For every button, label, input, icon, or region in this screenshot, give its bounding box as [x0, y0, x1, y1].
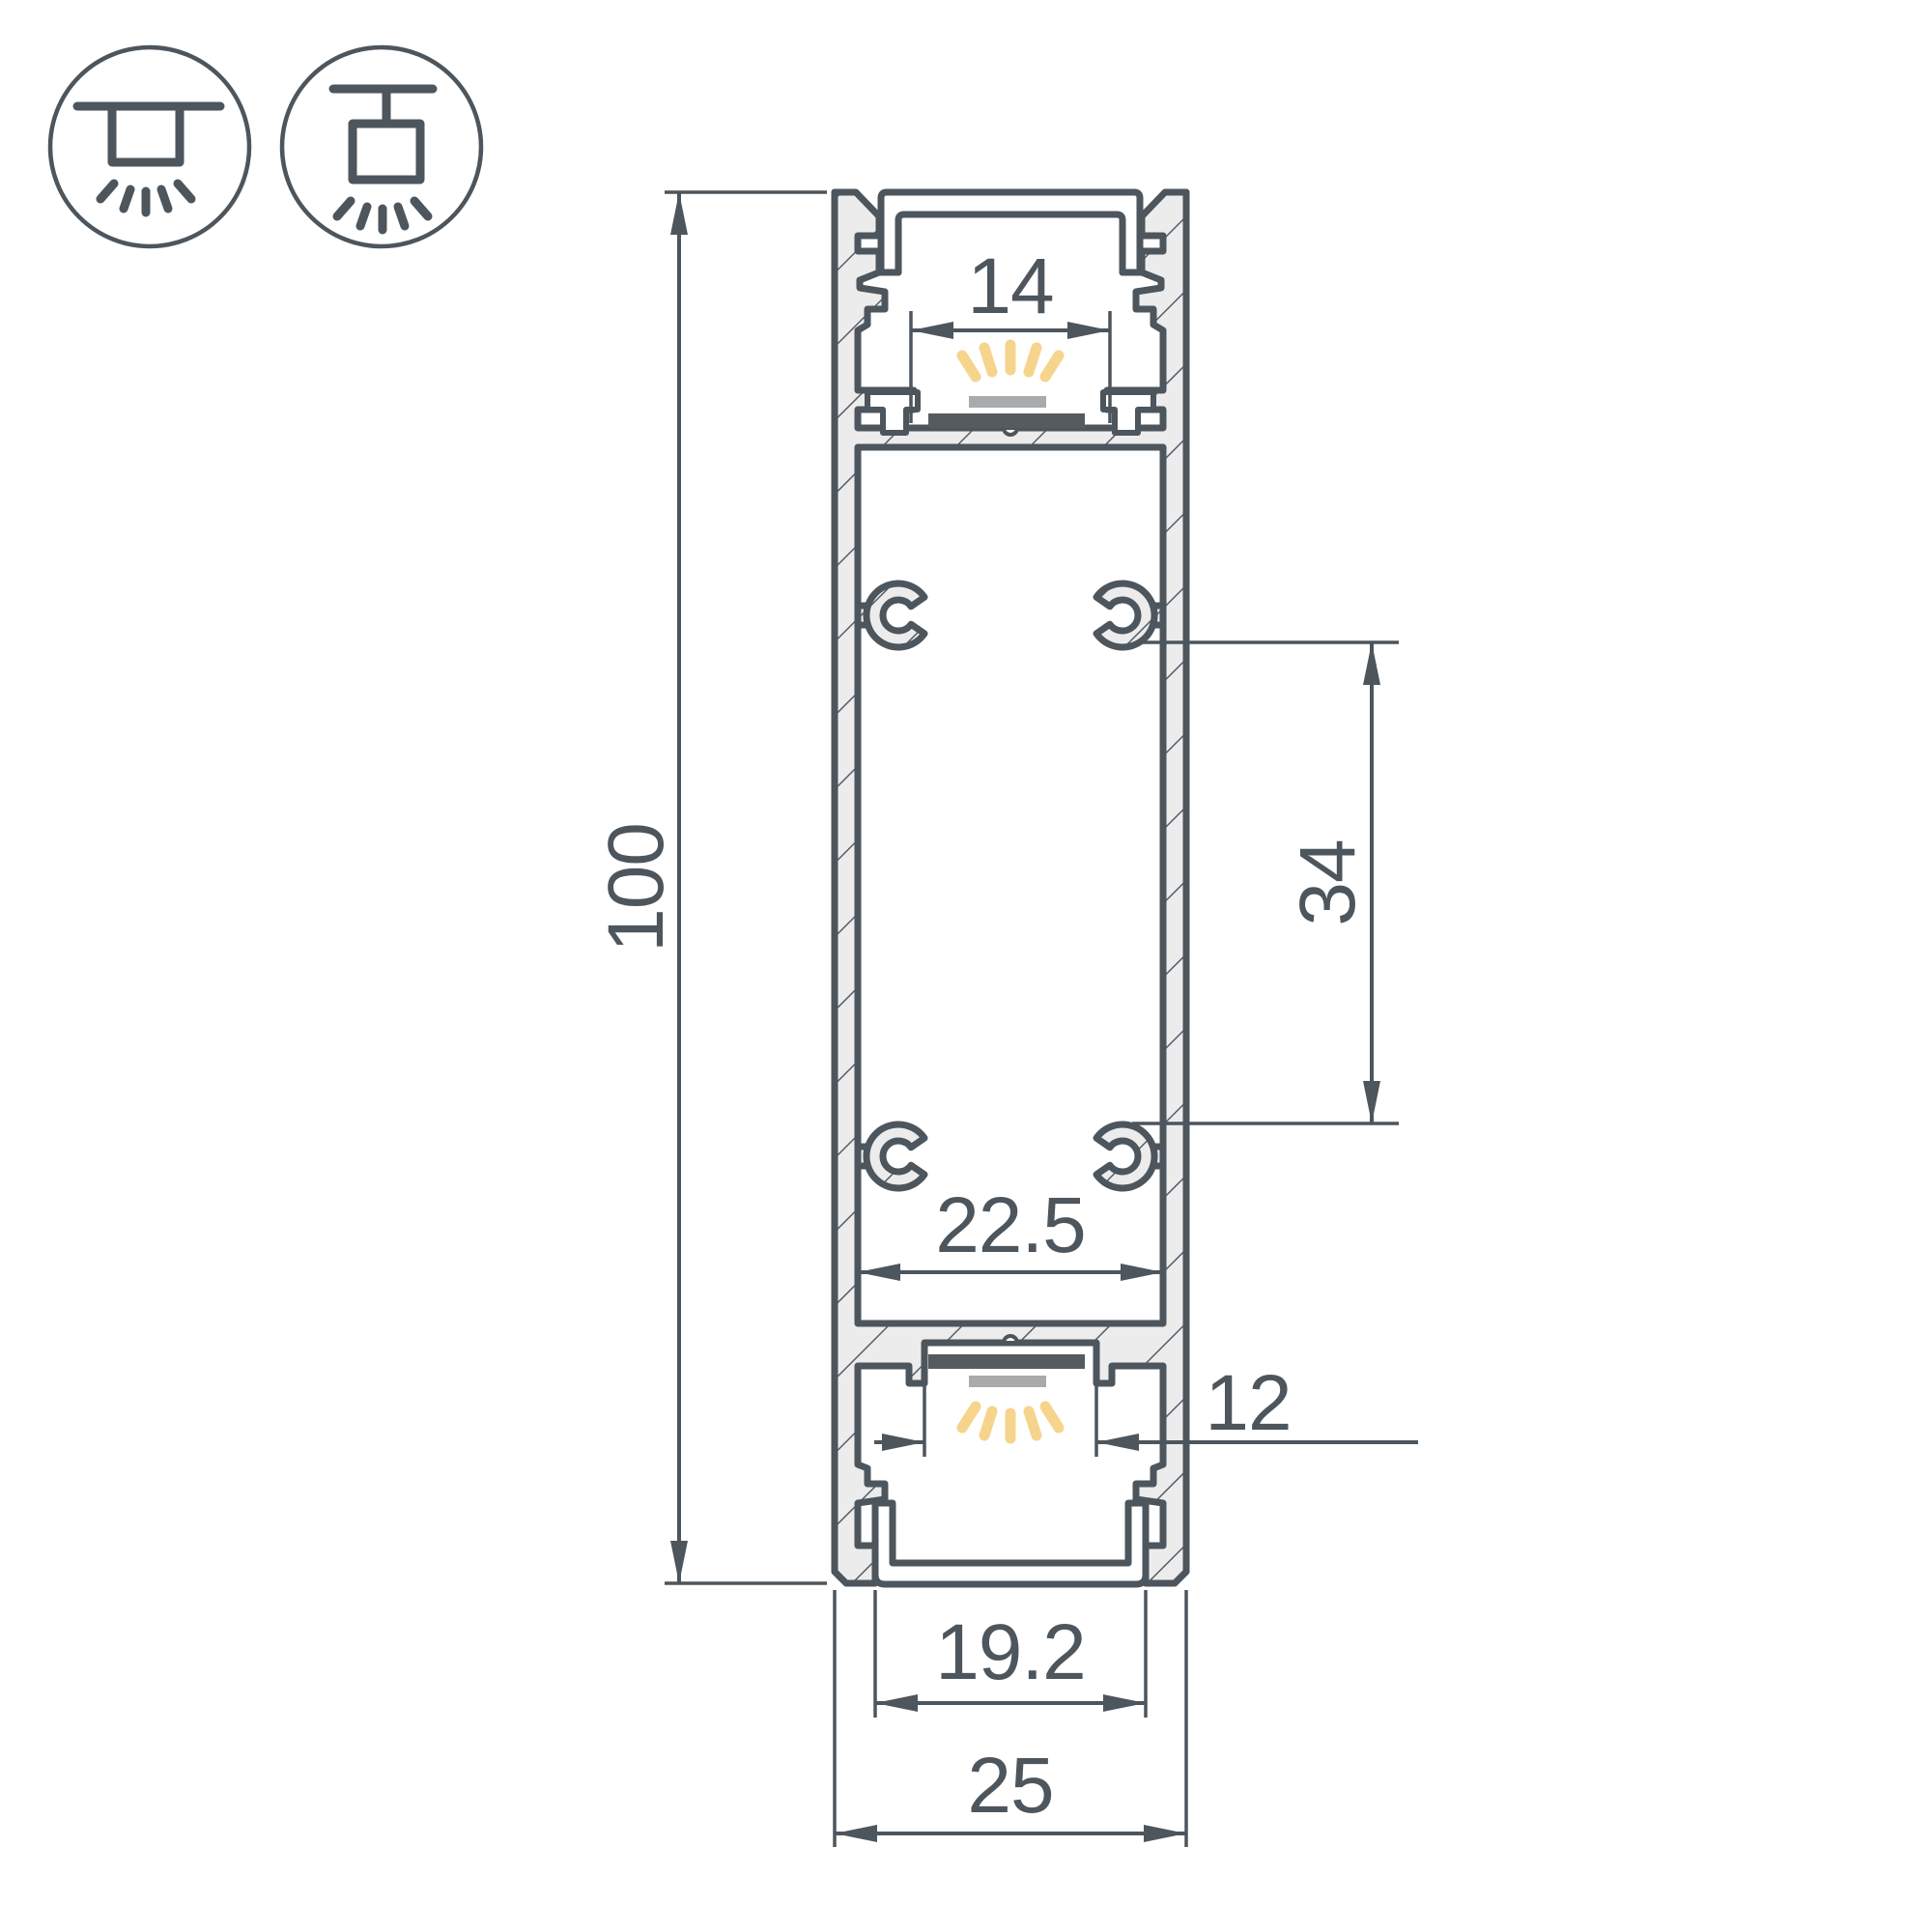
screw-boss [1096, 583, 1154, 647]
diffuser [875, 1503, 1146, 1584]
technical-drawing: 100 14 34 22.5 12 [0, 0, 1932, 1932]
pendant-mount-icon [282, 47, 481, 246]
pcb-bar [928, 1354, 1085, 1369]
pcb-bar [928, 413, 1085, 428]
light-rays-down-icon [962, 1406, 1059, 1438]
light-rays-up-icon [962, 345, 1059, 377]
screw-boss [1096, 1124, 1154, 1188]
mount-icons [50, 47, 481, 246]
dimension-label: 14 [967, 242, 1053, 330]
dimension-inner-width: 22.5 [858, 1181, 1163, 1272]
dimension-label: 12 [1205, 1359, 1291, 1447]
dimension-overall-height: 100 [592, 192, 827, 1583]
led-strip-top [928, 345, 1085, 428]
led-bar [969, 1376, 1046, 1387]
dimension-label: 19.2 [935, 1608, 1086, 1696]
dimension-label: 34 [1284, 839, 1372, 925]
screw-boss [867, 583, 924, 647]
surface-mount-icon [50, 47, 249, 246]
dimension-label: 25 [967, 1742, 1053, 1830]
dimension-label: 22.5 [935, 1181, 1086, 1269]
dimension-bottom-opening: 12 [874, 1359, 1418, 1457]
dimension-label: 100 [592, 823, 680, 952]
dimension-top-opening: 14 [911, 242, 1110, 423]
technical-drawing-page: 100 14 34 22.5 12 [0, 0, 1932, 1932]
screw-boss [867, 1124, 924, 1188]
led-bar [969, 396, 1046, 408]
profile-cross-section [835, 192, 1186, 1584]
screw-bosses [858, 583, 1163, 1188]
led-strip-bottom [928, 1354, 1085, 1438]
dimension-diffuser-opening: 19.2 [875, 1590, 1146, 1718]
